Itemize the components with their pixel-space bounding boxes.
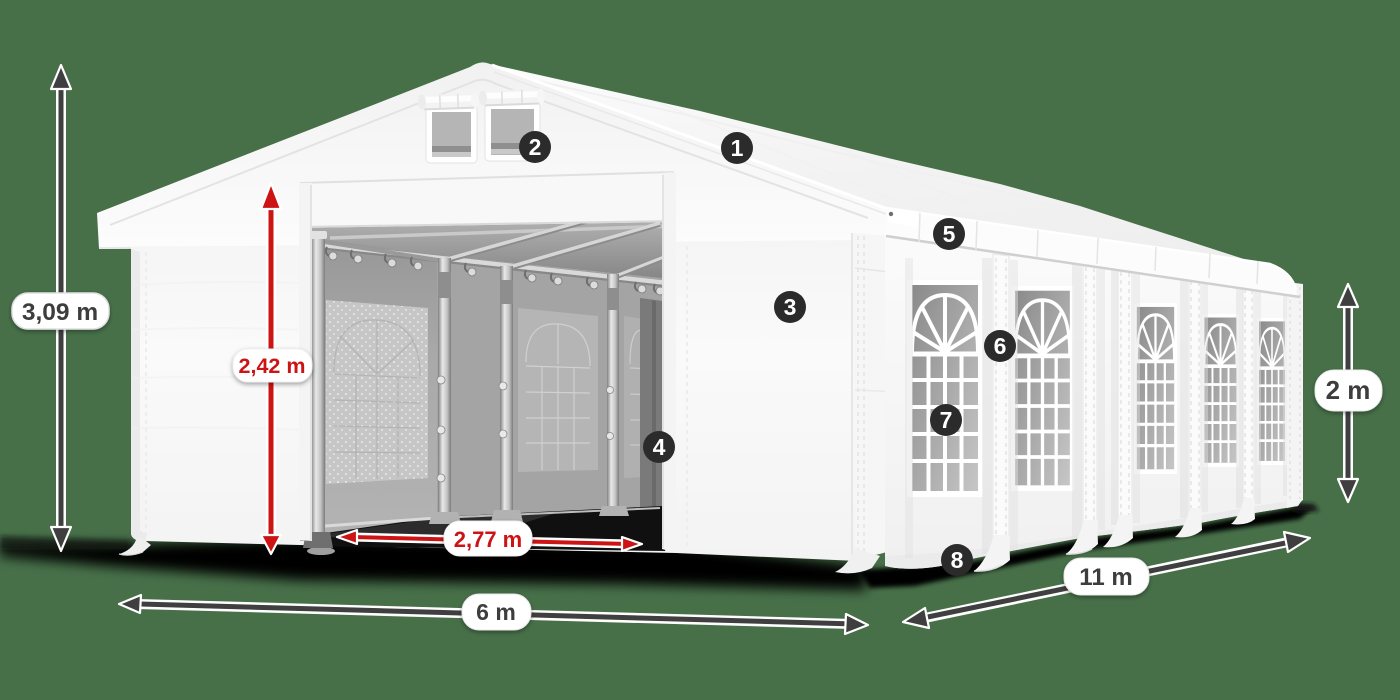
svg-text:3: 3 <box>784 294 797 320</box>
svg-text:6: 6 <box>994 333 1007 359</box>
svg-text:4: 4 <box>653 434 666 460</box>
svg-text:1: 1 <box>731 135 744 161</box>
svg-text:6 m: 6 m <box>476 599 516 625</box>
svg-text:2 m: 2 m <box>1326 375 1371 405</box>
svg-text:2: 2 <box>529 134 542 160</box>
svg-text:8: 8 <box>951 547 964 573</box>
svg-text:2,77 m: 2,77 m <box>454 527 523 552</box>
svg-text:5: 5 <box>943 221 956 247</box>
svg-text:2,42 m: 2,42 m <box>239 354 306 378</box>
svg-text:7: 7 <box>940 407 953 433</box>
svg-text:11 m: 11 m <box>1079 564 1132 591</box>
svg-text:3,09 m: 3,09 m <box>22 299 98 326</box>
